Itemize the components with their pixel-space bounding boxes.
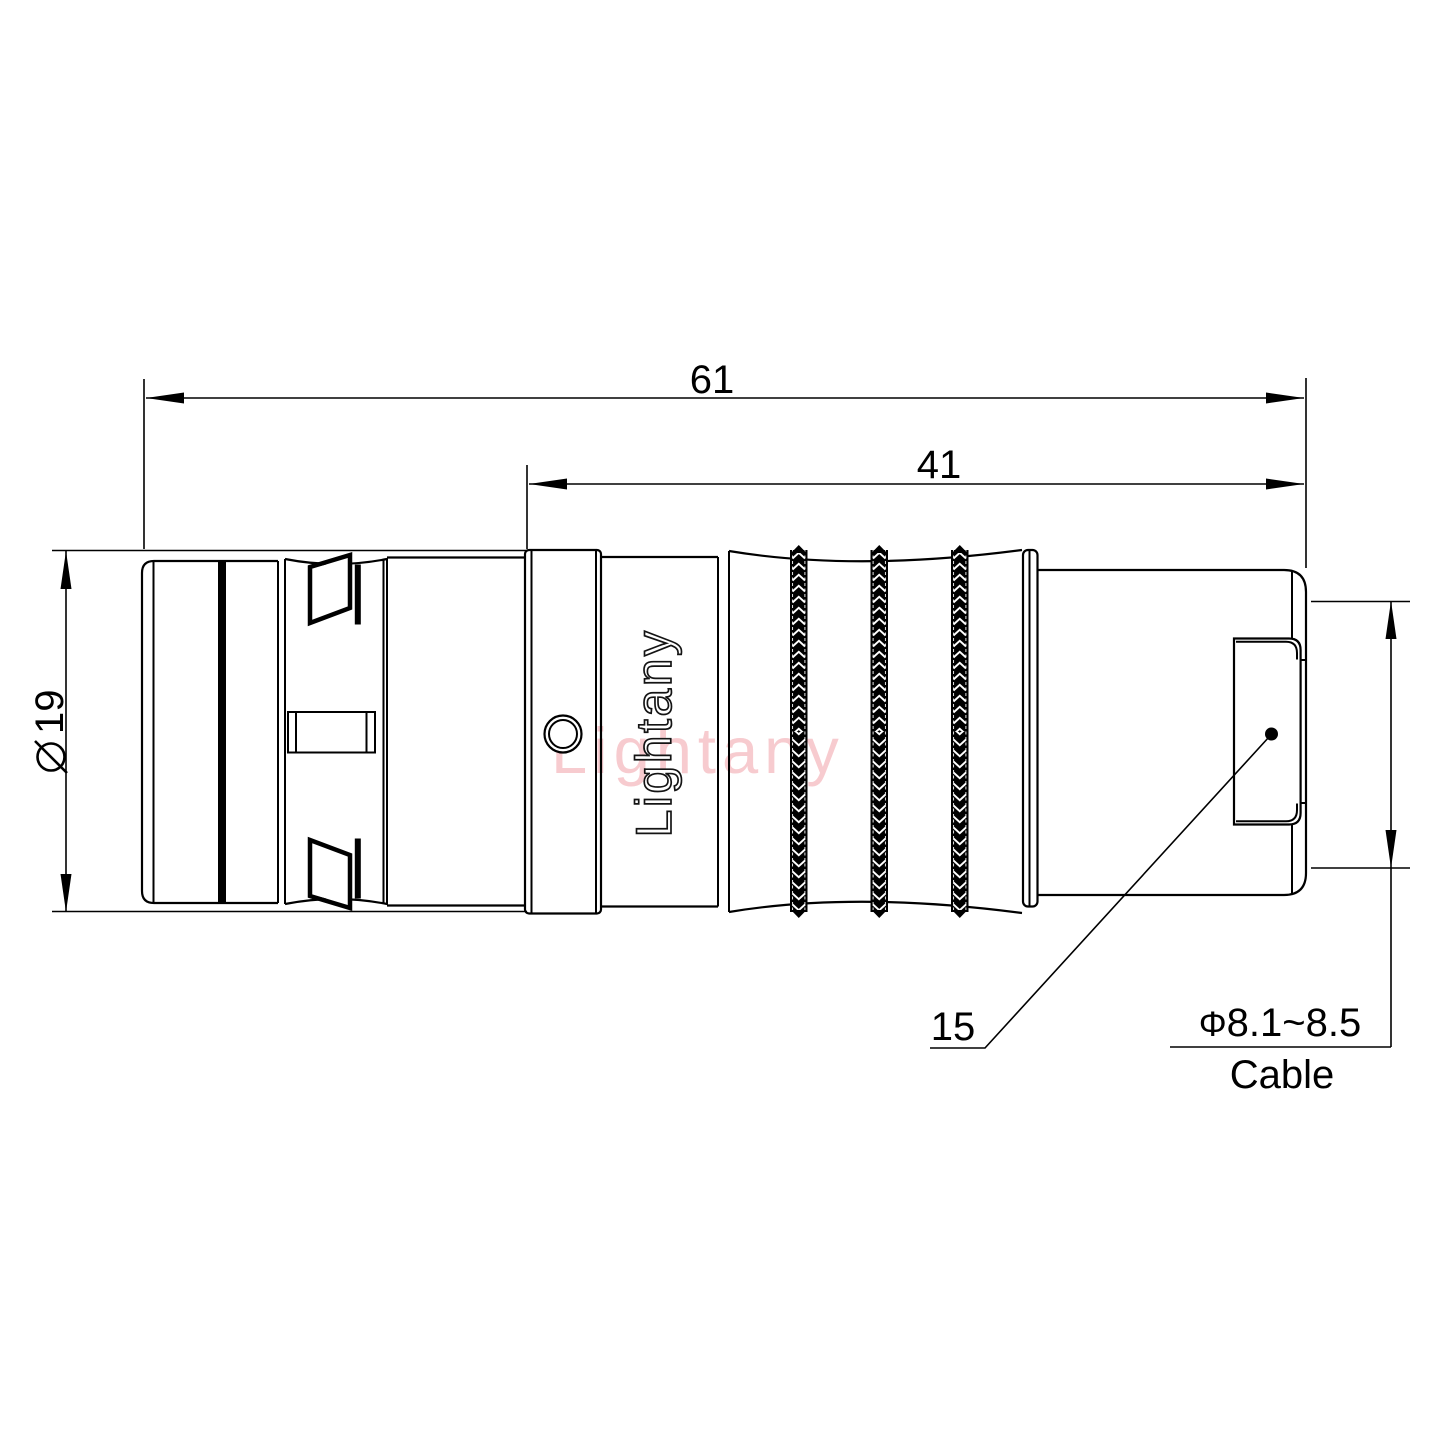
svg-text:Lightany: Lightany — [626, 628, 682, 837]
svg-text:41: 41 — [917, 443, 962, 487]
svg-text:Φ8.1~8.5: Φ8.1~8.5 — [1199, 1001, 1362, 1045]
svg-text:19: 19 — [28, 690, 72, 735]
svg-text:15: 15 — [931, 1005, 976, 1049]
svg-text:61: 61 — [690, 358, 735, 402]
svg-text:Cable: Cable — [1230, 1053, 1335, 1097]
